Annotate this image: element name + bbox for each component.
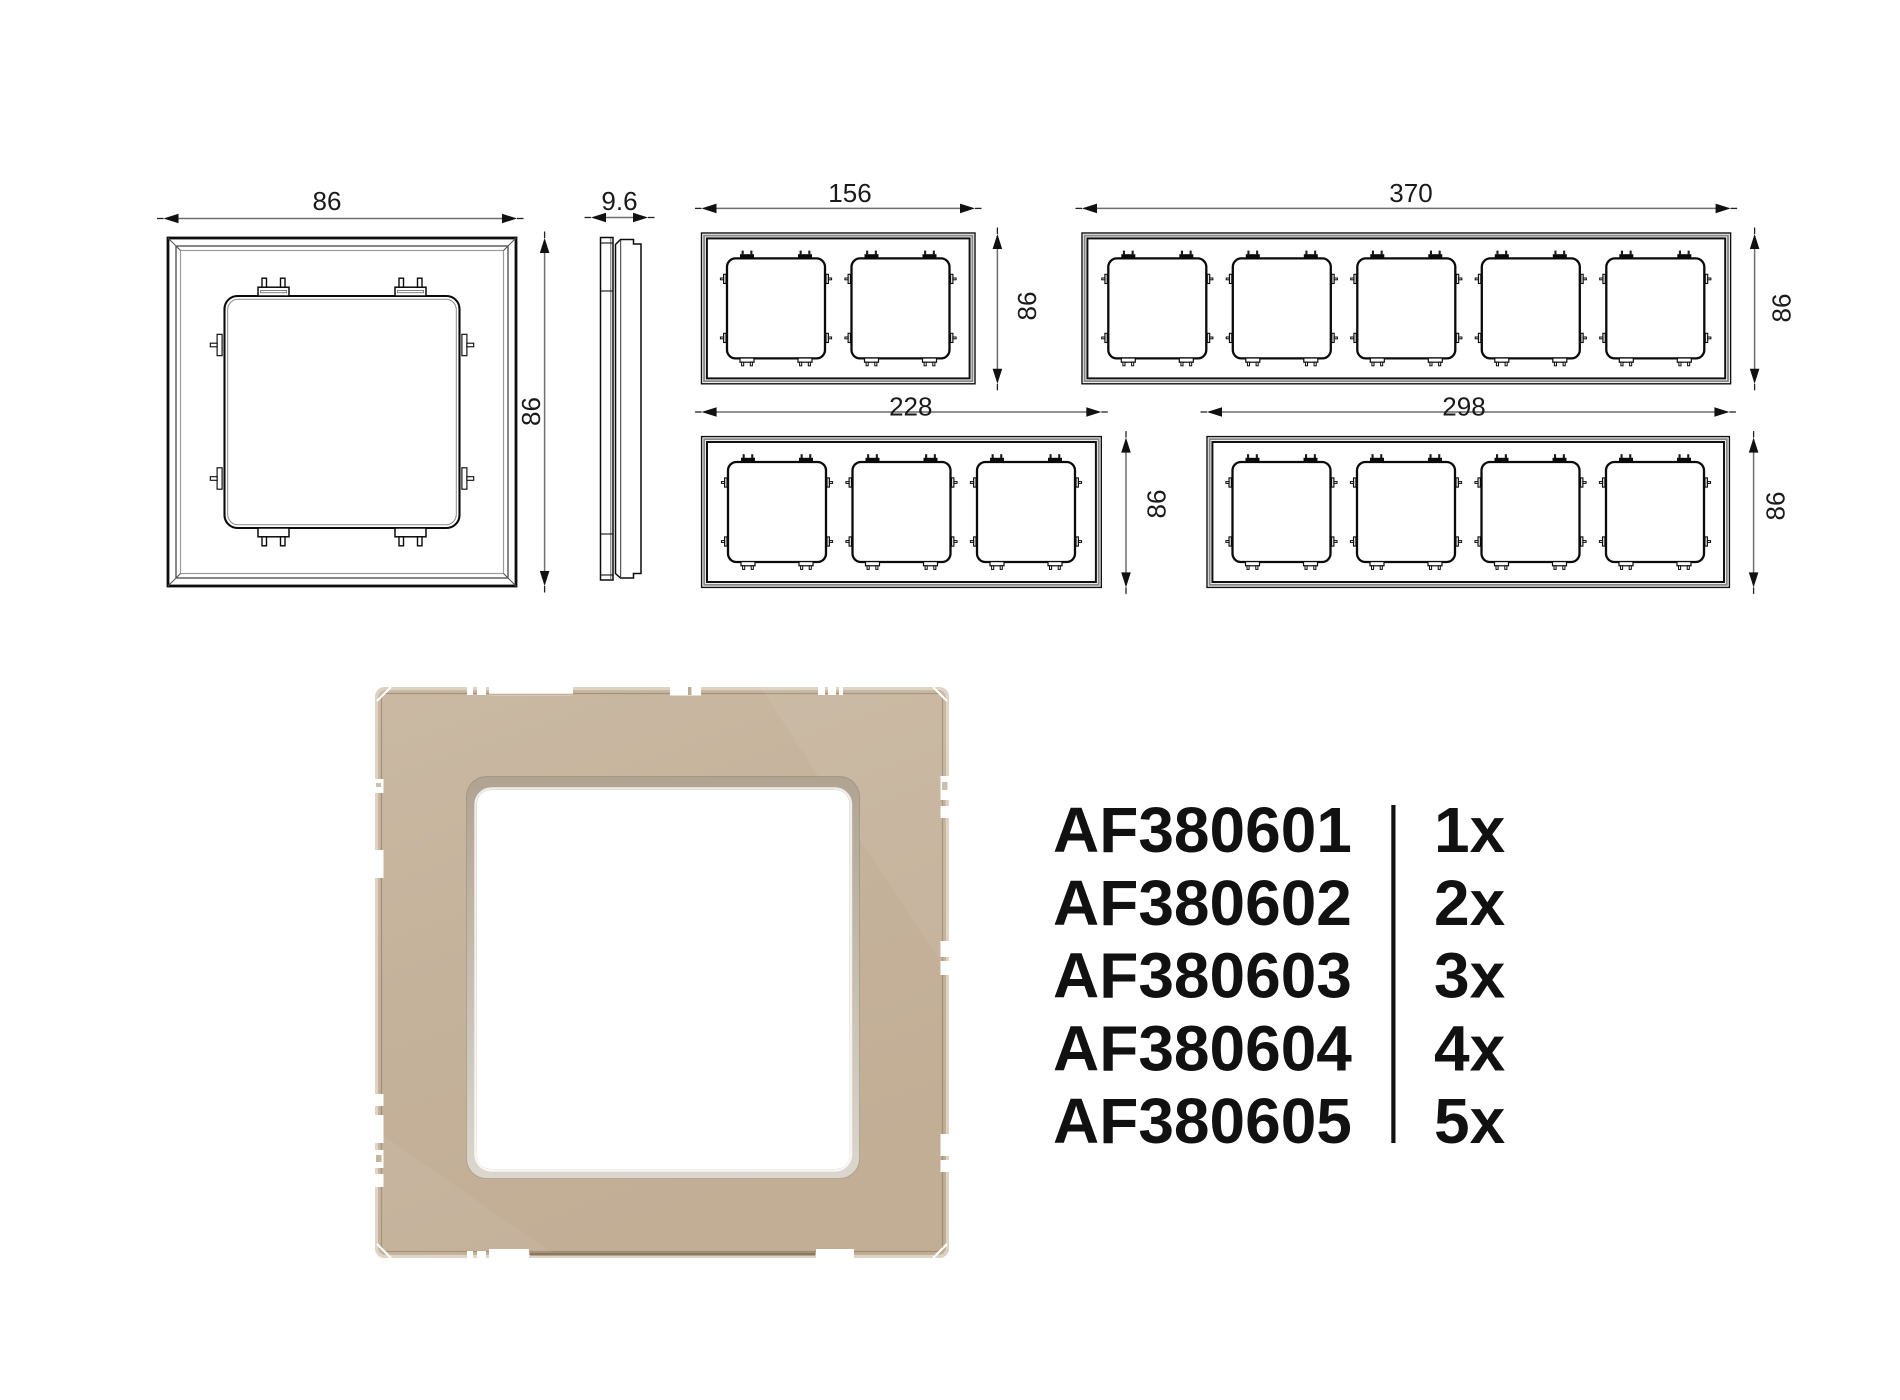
svg-text:AF380605: AF380605 [1053, 1085, 1352, 1157]
svg-text:228: 228 [889, 391, 932, 421]
svg-text:156: 156 [828, 178, 871, 208]
svg-text:298: 298 [1442, 391, 1485, 421]
svg-text:1x: 1x [1434, 794, 1506, 866]
svg-text:4x: 4x [1434, 1012, 1506, 1084]
svg-text:9.6: 9.6 [601, 186, 637, 216]
svg-text:86: 86 [1767, 294, 1797, 323]
svg-text:AF380602: AF380602 [1053, 867, 1352, 939]
svg-text:2x: 2x [1434, 867, 1506, 939]
svg-text:86: 86 [1761, 492, 1791, 521]
svg-text:AF380601: AF380601 [1053, 794, 1352, 866]
svg-text:AF380604: AF380604 [1053, 1012, 1352, 1084]
svg-text:86: 86 [1142, 490, 1172, 519]
svg-text:86: 86 [516, 397, 546, 426]
svg-text:3x: 3x [1434, 940, 1506, 1012]
svg-text:86: 86 [313, 186, 342, 216]
svg-text:86: 86 [1012, 292, 1042, 321]
svg-text:370: 370 [1389, 178, 1432, 208]
svg-text:AF380603: AF380603 [1053, 940, 1352, 1012]
svg-text:5x: 5x [1434, 1085, 1506, 1157]
